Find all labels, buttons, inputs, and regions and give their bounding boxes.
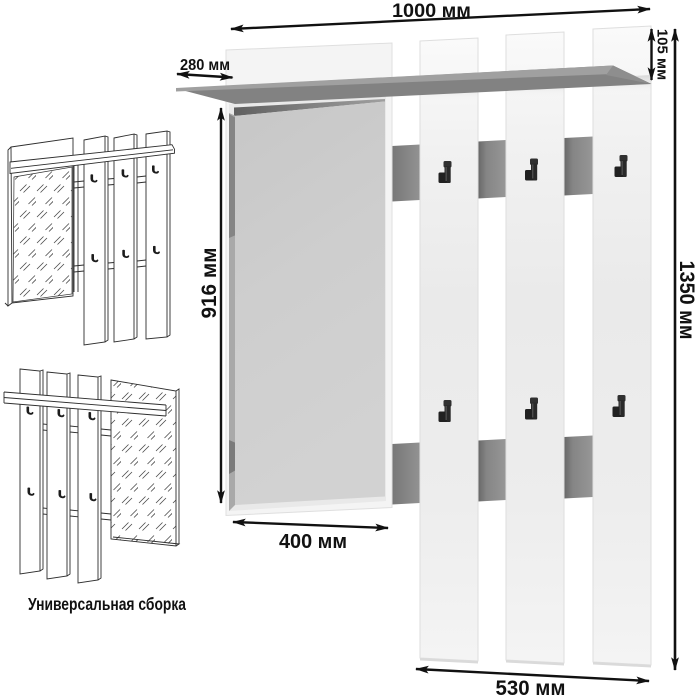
svg-text:105 мм: 105 мм: [654, 29, 671, 80]
svg-text:530 мм: 530 мм: [496, 677, 566, 700]
svg-text:916 мм: 916 мм: [198, 248, 221, 319]
svg-text:Универсальная сборка: Универсальная сборка: [28, 594, 186, 614]
svg-text:280 мм: 280 мм: [180, 57, 230, 74]
svg-text:1000 мм: 1000 мм: [392, 1, 471, 22]
svg-text:400 мм: 400 мм: [279, 531, 347, 553]
svg-text:1350 мм: 1350 мм: [675, 261, 698, 340]
